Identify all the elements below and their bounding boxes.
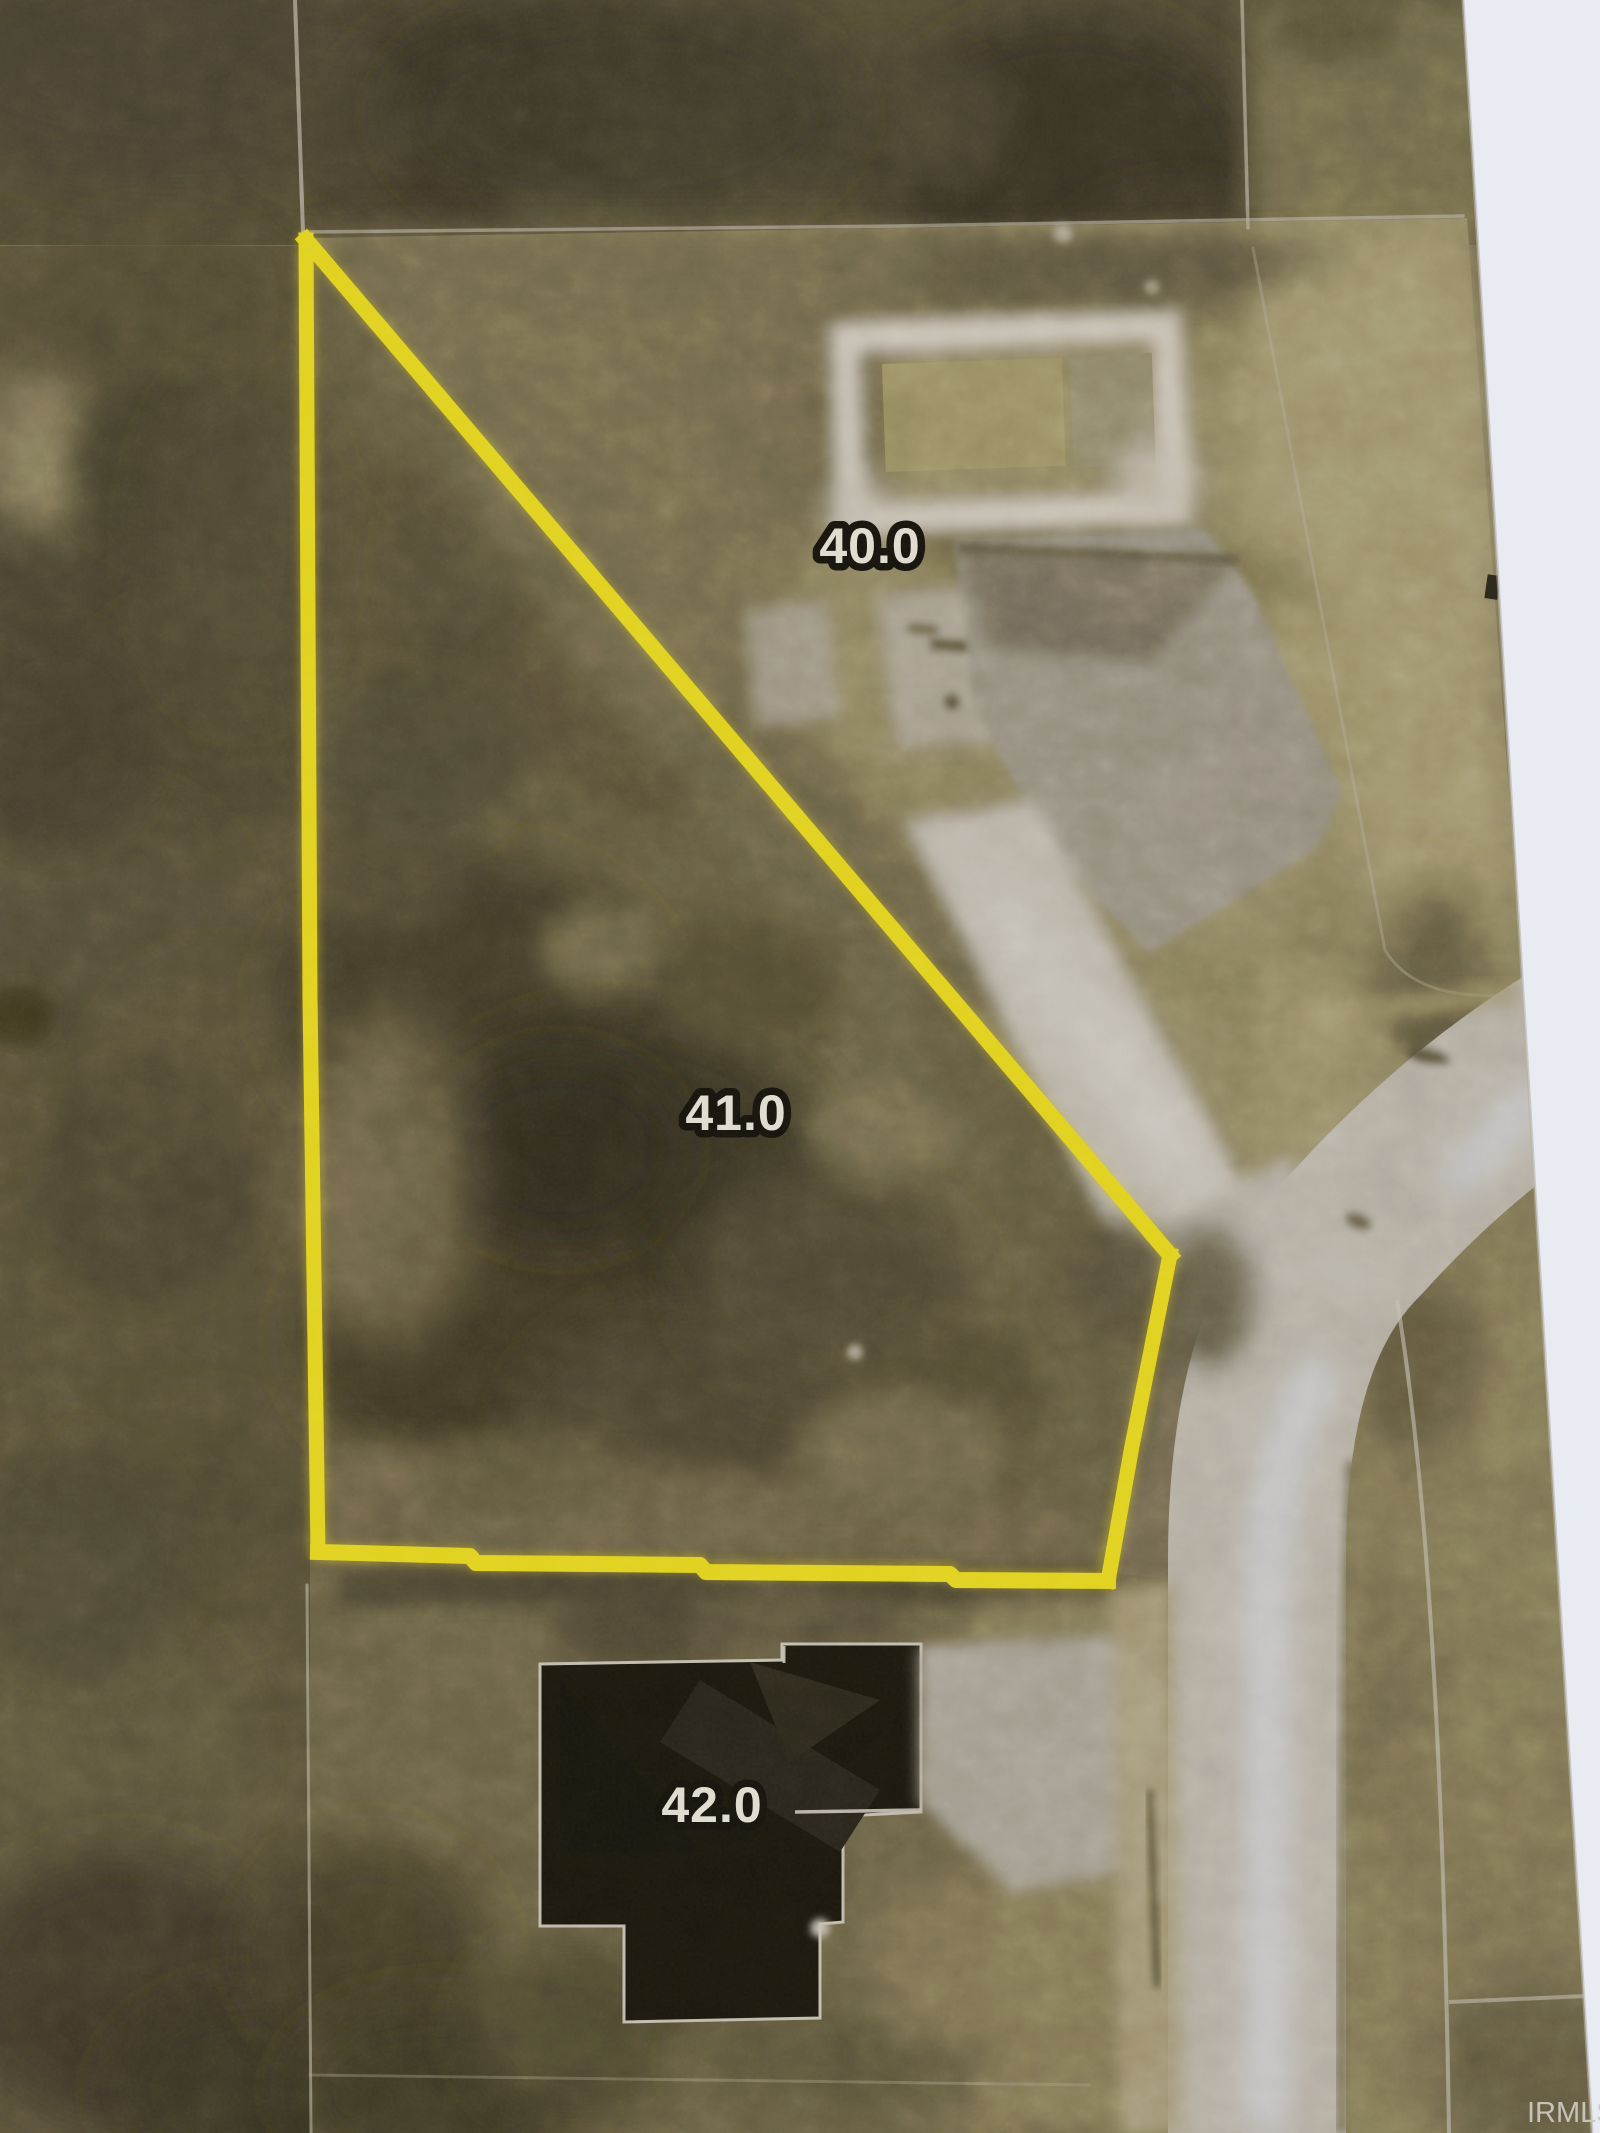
svg-text:IRMLS: IRMLS	[1527, 2097, 1600, 2129]
